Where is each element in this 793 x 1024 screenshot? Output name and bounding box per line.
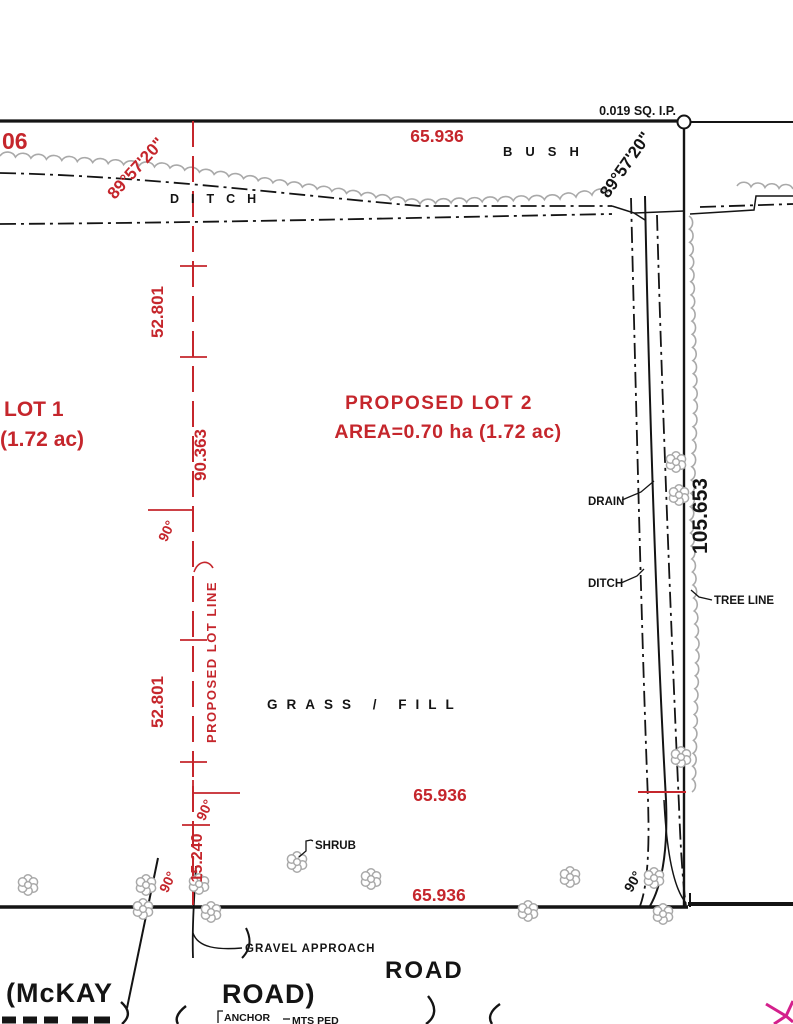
angle-low-label: 90° [193, 797, 216, 823]
plan-canvas: 0.019 SQ. I.P. BUSH DITCH 89°57'20" 105.… [0, 0, 793, 1024]
lot-line-label-hook [194, 562, 213, 572]
tree-line-top [0, 152, 608, 204]
angle-road-right-label: 90° [620, 868, 644, 894]
gravel-approach-leader [193, 933, 242, 949]
drain-label: DRAIN [588, 496, 624, 508]
seg-total-dim: 90.363 [191, 429, 210, 481]
shrub-label: SHRUB [315, 840, 356, 852]
shrub-leader [299, 840, 313, 857]
seg-upper-dim: 52.801 [148, 286, 167, 338]
angle-mid-label: 90° [155, 518, 178, 544]
mts-ped-label: MTS PED [292, 1015, 339, 1024]
bottom-curve-4 [490, 1004, 500, 1024]
approach-offset-dim: 15.240 [189, 833, 206, 882]
ditch-right-label: DITCH [588, 578, 623, 590]
ditch-top-label: DITCH [170, 192, 268, 206]
lot2-title: PROPOSED LOT 2 [345, 393, 533, 414]
ditch-line-right-east [657, 215, 686, 906]
ditch-line-right-west [631, 198, 649, 906]
lot-line-label: PROPOSED LOT LINE [204, 581, 219, 743]
angle-road-left-label: 90° [156, 869, 179, 895]
anchor-bracket [218, 1011, 223, 1023]
anchor-label: ANCHOR [224, 1012, 270, 1024]
east-depth-dim: 105.653 [689, 478, 712, 554]
tree-line-label: TREE LINE [714, 595, 774, 607]
ditch-line-top-2 [0, 214, 612, 224]
road-name-right: ROAD) [222, 979, 316, 1009]
angle-corner-low [193, 780, 240, 800]
grass-fill-label: GRASS / FILL [267, 697, 463, 712]
shrub-symbols [18, 452, 690, 924]
top-width-dim: 65.936 [410, 126, 464, 146]
iron-post-label: 0.019 SQ. I.P. [599, 104, 676, 118]
tree-line-top-right [737, 182, 793, 189]
mid-width-dim: 65.936 [413, 785, 467, 805]
partial-dim-left: 06 [2, 128, 28, 154]
pink-survey-mark-icon [766, 1001, 793, 1024]
road-name-left: (McKAY [6, 978, 113, 1008]
angle-ne-label: 89°57'20" [596, 128, 655, 201]
ditch-line-top-east [700, 204, 793, 207]
road-label: ROAD [385, 957, 464, 984]
bottom-curve-3 [426, 996, 434, 1024]
lot1-area: (1.72 ac) [0, 428, 84, 451]
iron-post-marker [678, 116, 691, 129]
angle-nw-label: 89°57'20" [104, 134, 169, 203]
lot2-area: AREA=0.70 ha (1.72 ac) [334, 421, 561, 443]
lot1-title: LOT 1 [4, 398, 64, 421]
bush-label: BUSH [503, 144, 592, 159]
ditch-line-top-1 [0, 173, 612, 206]
bottom-curve-2 [177, 1006, 186, 1024]
ditch-jog-connector [612, 206, 684, 220]
bottom-width-dim: 65.936 [412, 885, 466, 905]
survey-plan-drawing: 0.019 SQ. I.P. BUSH DITCH 89°57'20" 105.… [0, 0, 793, 1024]
seg-lower-dim: 52.801 [148, 676, 167, 728]
gravel-approach-label: GRAVEL APPROACH [245, 943, 375, 955]
